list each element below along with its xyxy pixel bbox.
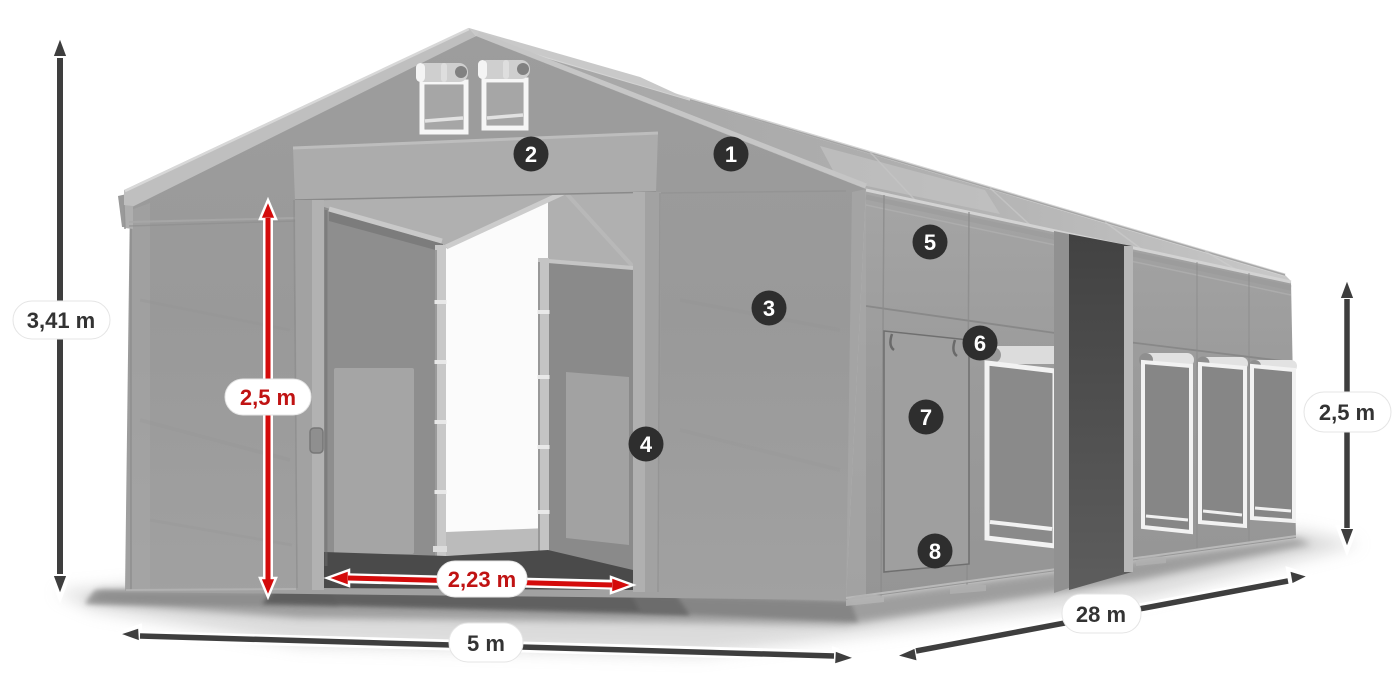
svg-text:28 m: 28 m: [1076, 602, 1126, 627]
svg-text:1: 1: [725, 142, 737, 167]
svg-text:6: 6: [974, 331, 986, 356]
svg-text:3: 3: [763, 296, 775, 321]
svg-text:2,23 m: 2,23 m: [448, 567, 517, 592]
svg-text:5 m: 5 m: [467, 631, 505, 656]
svg-text:5: 5: [924, 230, 936, 255]
svg-text:3,41 m: 3,41 m: [27, 308, 96, 333]
svg-text:2: 2: [525, 142, 537, 167]
svg-text:8: 8: [929, 539, 941, 564]
svg-text:7: 7: [920, 405, 932, 430]
svg-text:4: 4: [640, 432, 653, 457]
svg-text:2,5 m: 2,5 m: [240, 385, 296, 410]
svg-text:2,5 m: 2,5 m: [1319, 400, 1375, 425]
